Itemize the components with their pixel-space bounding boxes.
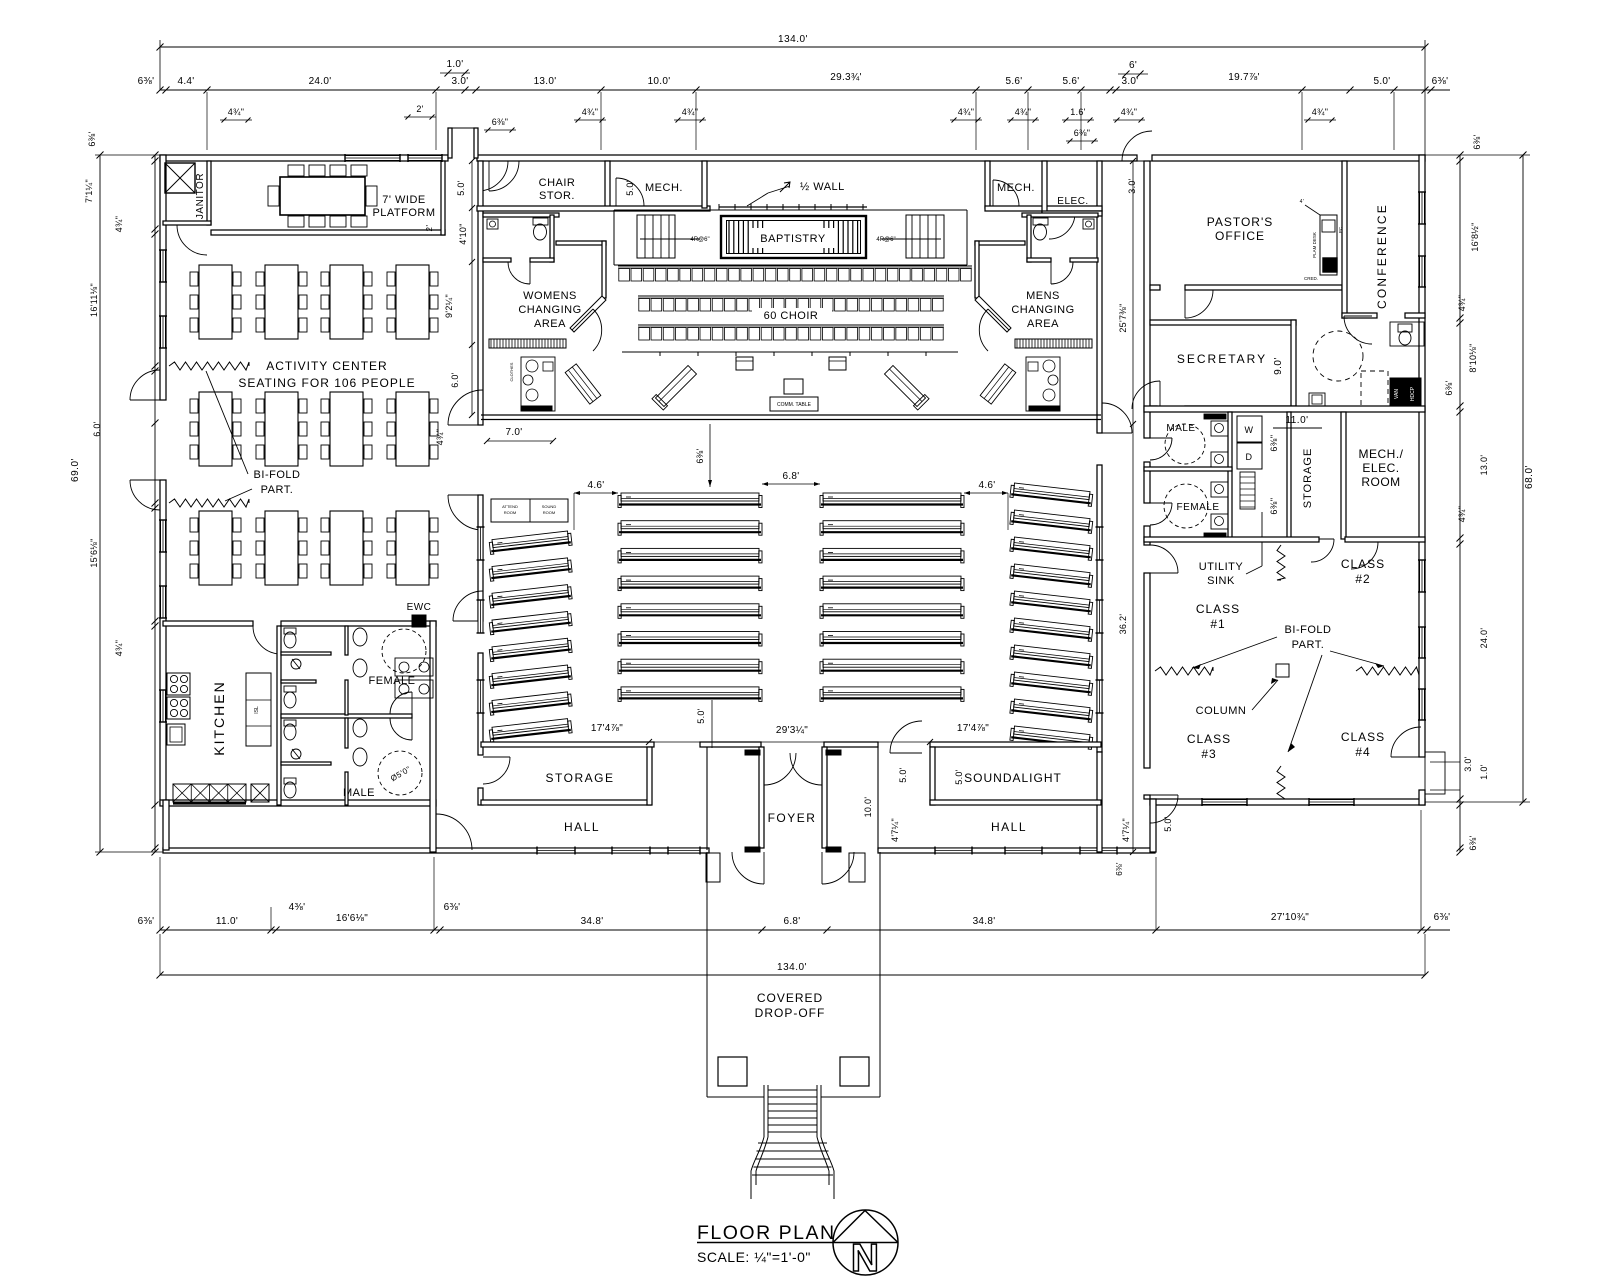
svg-text:1.0': 1.0' <box>1479 764 1489 779</box>
svg-text:4¾": 4¾" <box>435 429 445 446</box>
svg-text:3.0': 3.0' <box>1463 756 1473 771</box>
svg-text:3.0': 3.0' <box>1127 178 1137 193</box>
svg-text:6.0': 6.0' <box>92 421 102 436</box>
svg-text:PART.: PART. <box>1292 639 1325 651</box>
svg-text:5.0': 5.0' <box>954 769 964 784</box>
svg-text:KITCHEN: KITCHEN <box>211 680 227 755</box>
svg-text:5.0': 5.0' <box>696 708 706 723</box>
svg-text:6⅜': 6⅜' <box>444 902 461 913</box>
svg-text:5.6': 5.6' <box>1062 76 1079 87</box>
svg-text:5.0': 5.0' <box>625 180 635 195</box>
svg-text:7' WIDE: 7' WIDE <box>382 194 426 206</box>
svg-text:STORAGE: STORAGE <box>1302 448 1314 509</box>
svg-text:CHAIR: CHAIR <box>539 177 576 189</box>
svg-text:6⅜': 6⅜' <box>1472 134 1482 149</box>
svg-text:CLASS: CLASS <box>1187 732 1231 746</box>
svg-text:AREA: AREA <box>534 318 566 330</box>
svg-text:5.0': 5.0' <box>456 180 466 195</box>
svg-text:4'7¼": 4'7¼" <box>890 818 900 842</box>
svg-text:4'10": 4'10" <box>458 223 468 244</box>
svg-text:34.8': 34.8' <box>581 916 604 927</box>
svg-text:4¾": 4¾" <box>228 107 245 117</box>
svg-text:MECH./: MECH./ <box>1359 447 1404 461</box>
svg-text:VAN: VAN <box>1394 389 1400 399</box>
svg-text:HALL: HALL <box>991 820 1027 834</box>
svg-text:BAPTISTRY: BAPTISTRY <box>760 233 826 245</box>
svg-text:4': 4' <box>1300 199 1305 205</box>
svg-text:5.6': 5.6' <box>1005 76 1022 87</box>
svg-text:68.0': 68.0' <box>1524 465 1535 489</box>
svg-text:HALL: HALL <box>564 820 600 834</box>
svg-text:7'1¼": 7'1¼" <box>84 179 94 203</box>
svg-text:6⅜': 6⅜' <box>138 76 155 87</box>
svg-text:134.0': 134.0' <box>778 34 808 45</box>
svg-text:13.0': 13.0' <box>1479 455 1489 476</box>
svg-text:4¾": 4¾" <box>114 216 124 233</box>
svg-text:134.0': 134.0' <box>777 962 807 973</box>
svg-text:29.3¾': 29.3¾' <box>830 72 862 83</box>
svg-text:ROOM: ROOM <box>543 510 555 515</box>
svg-text:OFFICE: OFFICE <box>1215 229 1265 243</box>
svg-text:6⅜': 6⅜' <box>138 916 155 927</box>
svg-text:FEMALE: FEMALE <box>1176 502 1219 513</box>
svg-text:ELEC.: ELEC. <box>1362 461 1399 475</box>
svg-text:13.0': 13.0' <box>534 76 557 87</box>
svg-text:6⅜': 6⅜' <box>87 131 97 146</box>
svg-text:UTILITY: UTILITY <box>1199 561 1244 573</box>
svg-text:3.0': 3.0' <box>451 76 468 87</box>
svg-text:16'6⅛": 16'6⅛" <box>336 913 368 924</box>
svg-text:CLASS: CLASS <box>1341 730 1385 744</box>
svg-text:69.0': 69.0' <box>70 458 81 482</box>
svg-text:6.0': 6.0' <box>450 372 460 387</box>
svg-text:EWC: EWC <box>407 602 432 613</box>
svg-text:#2: #2 <box>1355 572 1370 586</box>
svg-text:6⅜': 6⅜' <box>1432 76 1449 87</box>
svg-text:½ WALL: ½ WALL <box>800 181 845 193</box>
svg-text:6⅜": 6⅜" <box>492 117 509 127</box>
svg-text:27'10¾": 27'10¾" <box>1271 912 1309 923</box>
svg-text:4R@6": 4R@6" <box>876 237 895 243</box>
svg-text:CRED.: CRED. <box>1304 276 1318 281</box>
svg-text:3.0': 3.0' <box>1121 76 1138 87</box>
svg-text:SINK: SINK <box>1207 575 1235 587</box>
svg-text:11.0': 11.0' <box>1285 415 1308 426</box>
svg-text:4¾": 4¾" <box>1457 295 1467 312</box>
svg-text:15'6⅛": 15'6⅛" <box>89 538 99 567</box>
svg-text:17'4⅞": 17'4⅞" <box>957 723 989 734</box>
svg-text:AREA: AREA <box>1027 318 1059 330</box>
svg-text:16'8½": 16'8½" <box>1470 222 1480 251</box>
svg-text:N: N <box>851 1237 879 1280</box>
svg-text:4¾": 4¾" <box>1121 107 1138 117</box>
svg-text:34.8': 34.8' <box>973 916 996 927</box>
svg-text:BI-FOLD: BI-FOLD <box>1285 624 1332 636</box>
svg-text:6⅜": 6⅜" <box>1074 128 1091 138</box>
svg-text:1.0': 1.0' <box>446 59 463 70</box>
svg-text:11.0': 11.0' <box>216 916 238 927</box>
svg-text:4¾": 4¾" <box>682 107 699 117</box>
svg-text:JANITOR: JANITOR <box>195 173 206 219</box>
svg-text:8'10⅛": 8'10⅛" <box>1468 343 1478 372</box>
svg-text:ISL: ISL <box>254 706 260 714</box>
svg-text:ROOM: ROOM <box>1361 475 1400 489</box>
svg-text:36.2': 36.2' <box>1118 614 1128 635</box>
svg-text:ATTEND: ATTEND <box>502 504 518 509</box>
svg-text:4¾": 4¾" <box>114 640 124 657</box>
svg-text:4.6': 4.6' <box>587 480 604 491</box>
svg-text:W: W <box>1245 425 1254 435</box>
svg-text:ACTIVITY CENTER: ACTIVITY CENTER <box>266 359 387 373</box>
svg-text:5.0': 5.0' <box>898 767 908 782</box>
svg-text:STORAGE: STORAGE <box>546 771 615 785</box>
svg-text:6⅜': 6⅜' <box>1434 912 1451 923</box>
svg-text:CLASS: CLASS <box>1196 602 1240 616</box>
svg-text:17'4⅞": 17'4⅞" <box>591 723 623 734</box>
svg-text:HDCP: HDCP <box>1410 386 1416 401</box>
svg-text:#4: #4 <box>1355 745 1370 759</box>
svg-text:5.0': 5.0' <box>1163 816 1173 831</box>
svg-text:4.6': 4.6' <box>978 480 995 491</box>
svg-text:#1: #1 <box>1210 617 1225 631</box>
svg-text:5.0': 5.0' <box>1373 76 1390 87</box>
svg-text:CLOTHES: CLOTHES <box>509 362 514 381</box>
svg-text:COMM. TABLE: COMM. TABLE <box>777 402 812 408</box>
svg-text:6.8': 6.8' <box>782 471 799 482</box>
svg-text:6⅜": 6⅜" <box>1269 497 1279 514</box>
svg-text:ELEC.: ELEC. <box>1057 196 1088 207</box>
svg-text:4R@6": 4R@6" <box>690 237 709 243</box>
svg-text:4.4': 4.4' <box>177 76 194 87</box>
svg-text:6.8': 6.8' <box>783 916 800 927</box>
svg-text:CLASS: CLASS <box>1341 557 1385 571</box>
svg-text:FEMALE: FEMALE <box>368 675 415 687</box>
svg-text:COVERED: COVERED <box>757 991 823 1005</box>
svg-text:6⅜": 6⅜" <box>1269 434 1279 451</box>
svg-text:SCALE: ¼"=1'-0": SCALE: ¼"=1'-0" <box>697 1249 811 1265</box>
svg-text:60 CHOIR: 60 CHOIR <box>764 310 819 322</box>
svg-text:7.0': 7.0' <box>505 427 522 438</box>
svg-text:CONFERENCE: CONFERENCE <box>1375 203 1389 309</box>
svg-text:6⅜': 6⅜' <box>1115 862 1124 876</box>
svg-text:10.0': 10.0' <box>648 76 671 87</box>
svg-text:D: D <box>1246 452 1253 462</box>
svg-text:4¾": 4¾" <box>1457 506 1467 523</box>
svg-text:FLOOR PLAN: FLOOR PLAN <box>697 1222 836 1244</box>
svg-text:PART.: PART. <box>261 484 294 496</box>
svg-text:COLUMN: COLUMN <box>1196 705 1247 717</box>
svg-text:BI-FOLD: BI-FOLD <box>254 469 301 481</box>
svg-text:SECRETARY: SECRETARY <box>1177 352 1267 366</box>
svg-text:PASTOR'S: PASTOR'S <box>1207 215 1274 229</box>
svg-text:4'7¼": 4'7¼" <box>1121 818 1131 842</box>
svg-text:2': 2' <box>425 225 434 232</box>
svg-text:PLATFORM: PLATFORM <box>372 207 435 219</box>
svg-text:6⅜': 6⅜' <box>1444 380 1454 395</box>
svg-text:4¾": 4¾" <box>1015 107 1032 117</box>
svg-text:1.6': 1.6' <box>1070 107 1085 117</box>
svg-text:4¾": 4¾" <box>582 107 599 117</box>
svg-text:FOYER: FOYER <box>768 811 817 825</box>
svg-text:9'2¼": 9'2¼" <box>444 294 454 318</box>
svg-text:9.0': 9.0' <box>1273 357 1284 375</box>
svg-text:24.0': 24.0' <box>309 76 332 87</box>
svg-text:DROP-OFF: DROP-OFF <box>755 1006 826 1020</box>
svg-text:CHANGING: CHANGING <box>1011 304 1074 316</box>
svg-text:SOUNDALIGHT: SOUNDALIGHT <box>964 771 1062 785</box>
svg-text:SEATING FOR 106 PEOPLE: SEATING FOR 106 PEOPLE <box>238 376 415 390</box>
svg-text:6': 6' <box>1129 60 1137 71</box>
svg-text:MECH.: MECH. <box>997 182 1035 194</box>
svg-text:25'7⅜": 25'7⅜" <box>1118 303 1128 332</box>
svg-text:MENS: MENS <box>1026 290 1060 302</box>
svg-text:4¾": 4¾" <box>1312 107 1329 117</box>
svg-text:4¾": 4¾" <box>958 107 975 117</box>
svg-text:SOUND: SOUND <box>542 504 557 509</box>
svg-text:16'11⅛": 16'11⅛" <box>89 283 99 317</box>
svg-text:MECH.: MECH. <box>645 182 683 194</box>
svg-text:6⅜': 6⅜' <box>695 448 705 463</box>
svg-text:WOMENS: WOMENS <box>523 290 577 302</box>
svg-text:PLAM DESK: PLAM DESK <box>1312 232 1317 258</box>
svg-text:6⅜': 6⅜' <box>1468 835 1478 850</box>
svg-text:ROOM: ROOM <box>504 510 516 515</box>
svg-text:29'3¼": 29'3¼" <box>776 724 808 736</box>
svg-text:CHANGING: CHANGING <box>518 304 581 316</box>
svg-text:4⅜': 4⅜' <box>289 902 306 913</box>
svg-text:#3: #3 <box>1201 747 1216 761</box>
svg-text:24.0': 24.0' <box>1479 628 1489 649</box>
svg-text:2': 2' <box>416 104 423 114</box>
svg-text:10.0': 10.0' <box>863 797 873 818</box>
svg-text:STOR.: STOR. <box>539 190 575 202</box>
svg-text:19.7⅞': 19.7⅞' <box>1228 72 1260 83</box>
